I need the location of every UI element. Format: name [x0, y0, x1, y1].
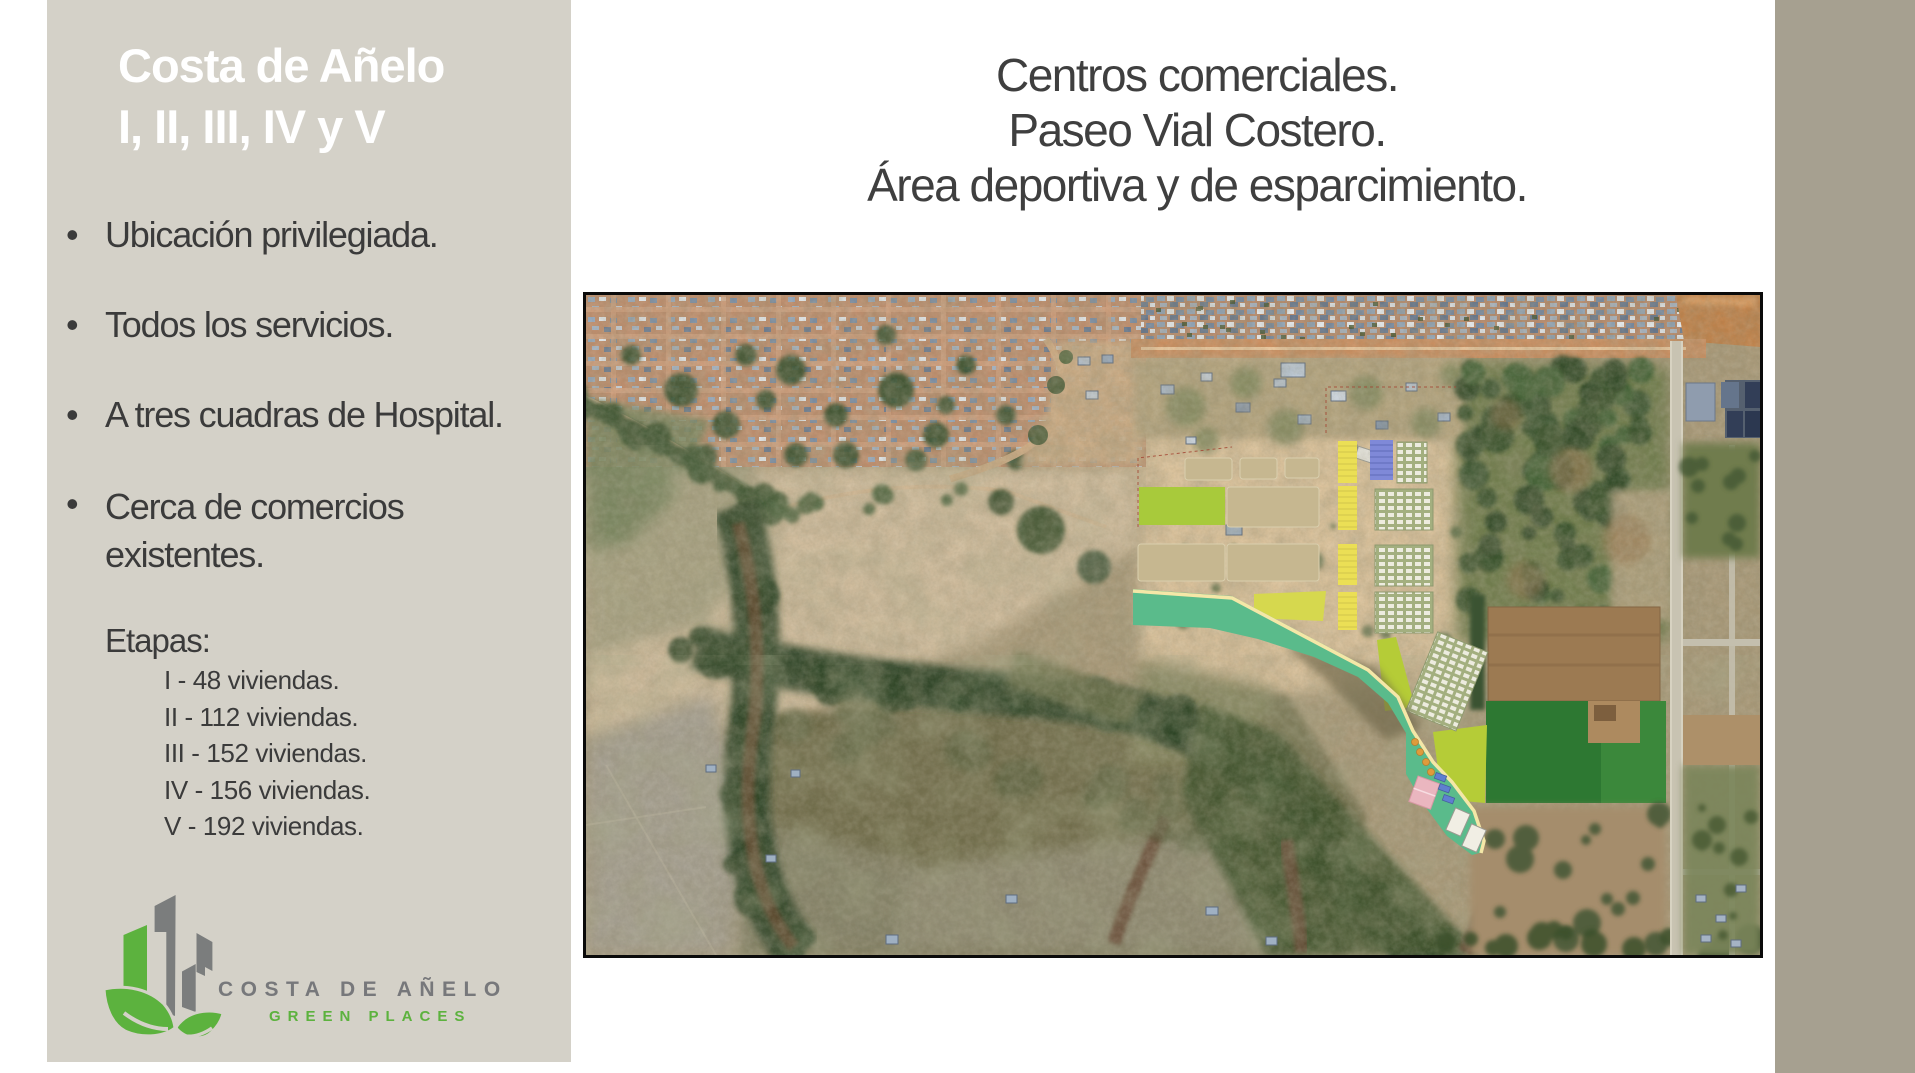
svg-text:COSTA DE AÑELO: COSTA DE AÑELO — [218, 978, 508, 1001]
svg-text:GREEN PLACES: GREEN PLACES — [269, 1008, 471, 1025]
